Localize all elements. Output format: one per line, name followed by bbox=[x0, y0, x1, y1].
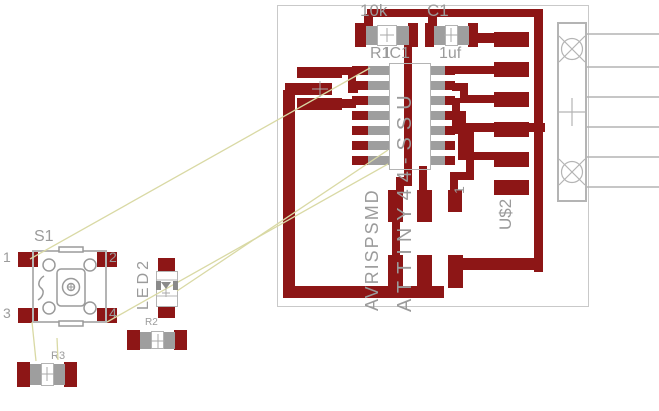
c1-body[interactable] bbox=[445, 25, 458, 46]
s1-pin-label: 3 bbox=[3, 306, 11, 321]
ic1-value-label: ATTINY44-SSU bbox=[394, 88, 416, 312]
connector-lead-line bbox=[587, 34, 659, 187]
c1-pad[interactable] bbox=[468, 23, 478, 47]
r2-pad-inner[interactable] bbox=[163, 332, 175, 349]
r2-pad[interactable] bbox=[127, 330, 140, 350]
c1-pad-inner[interactable] bbox=[457, 26, 469, 45]
s1-pin-label: 4 bbox=[109, 306, 117, 321]
r2-name-label: R2 bbox=[145, 317, 158, 328]
ic1-pad-inner[interactable] bbox=[368, 141, 389, 150]
ic1-pad-inner[interactable] bbox=[368, 81, 389, 90]
copper-trace[interactable] bbox=[283, 90, 295, 298]
u2-pin1-label: 1 bbox=[452, 186, 467, 194]
ic1-pad-inner[interactable] bbox=[431, 111, 445, 120]
copper-trace[interactable] bbox=[367, 9, 543, 17]
r1-pad[interactable] bbox=[408, 23, 418, 47]
ic1-pad-inner[interactable] bbox=[431, 96, 445, 105]
edge-pad[interactable] bbox=[494, 92, 529, 107]
ic1-pad-inner[interactable] bbox=[368, 156, 389, 165]
c1-value-label: 1uf bbox=[439, 45, 461, 63]
led2-body-outline[interactable] bbox=[156, 271, 178, 307]
ic1-pad-inner[interactable] bbox=[368, 96, 389, 105]
ic1-name-label: IC1 bbox=[385, 45, 410, 63]
copper-pad-bar[interactable] bbox=[297, 67, 342, 78]
ic1-pad-inner[interactable] bbox=[368, 126, 389, 135]
copper-trace[interactable] bbox=[460, 258, 540, 270]
r3-body[interactable] bbox=[41, 363, 54, 386]
copper-trace[interactable] bbox=[476, 33, 496, 43]
r3-pad[interactable] bbox=[17, 362, 30, 387]
ic1-pad-inner[interactable] bbox=[431, 81, 445, 90]
pcb-editor-canvas: 10k C1 R1 IC1 1uf ATTINY44-SSU AVRISPSMD… bbox=[0, 0, 659, 411]
r1-value-label: 10k bbox=[360, 2, 387, 21]
s1-pin-label: 1 bbox=[3, 250, 11, 265]
ic1-pad-inner[interactable] bbox=[368, 111, 389, 120]
r3-name-label: R3 bbox=[51, 350, 65, 362]
s1-name-label: S1 bbox=[34, 228, 54, 246]
ic1-pad-inner[interactable] bbox=[368, 66, 389, 75]
u2-pad[interactable] bbox=[417, 255, 432, 288]
edge-pad[interactable] bbox=[494, 180, 529, 195]
edge-pad[interactable] bbox=[494, 62, 529, 77]
u2-value-label: AVRISPSMD bbox=[363, 188, 383, 311]
edge-pad[interactable] bbox=[494, 122, 529, 137]
copper-pad-bar[interactable] bbox=[297, 98, 342, 110]
c1-pad[interactable] bbox=[425, 23, 434, 47]
led2-name-label: LED2 bbox=[135, 258, 153, 310]
r2-body[interactable] bbox=[151, 331, 164, 349]
ic1-pad-inner[interactable] bbox=[431, 126, 445, 135]
edge-pad[interactable] bbox=[494, 152, 529, 167]
u2-name-label: U$2 bbox=[497, 199, 516, 230]
edge-pad[interactable] bbox=[494, 32, 529, 47]
copper-trace[interactable] bbox=[458, 152, 494, 160]
r1-pad[interactable] bbox=[355, 23, 366, 47]
copper-trace[interactable] bbox=[452, 66, 494, 74]
copper-trace[interactable] bbox=[460, 95, 494, 103]
connector-body[interactable] bbox=[557, 22, 587, 202]
r3-pad-inner[interactable] bbox=[53, 364, 65, 385]
u2-pad[interactable] bbox=[448, 255, 463, 288]
r3-pad[interactable] bbox=[64, 362, 77, 387]
r1-body[interactable] bbox=[377, 25, 397, 46]
r2-pad[interactable] bbox=[174, 330, 187, 350]
u2-pad[interactable] bbox=[417, 190, 432, 222]
s1-body-outline[interactable] bbox=[32, 250, 107, 323]
ic1-pad-inner[interactable] bbox=[431, 141, 445, 150]
s1-pin-label: 2 bbox=[109, 250, 117, 265]
c1-name-label: C1 bbox=[427, 2, 449, 21]
r1-pad-inner[interactable] bbox=[397, 26, 409, 45]
copper-trace[interactable] bbox=[534, 13, 543, 272]
ic1-pad-inner[interactable] bbox=[431, 156, 445, 165]
ic1-pad-inner[interactable] bbox=[431, 66, 445, 75]
